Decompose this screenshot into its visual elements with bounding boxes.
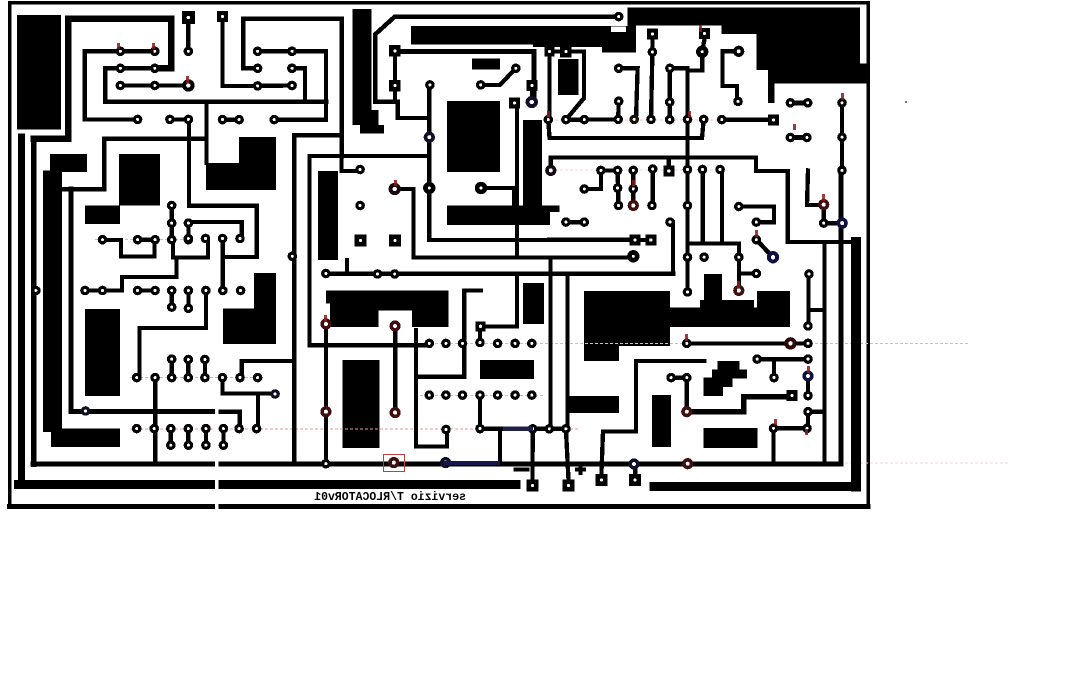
svg-text:servizio T/RLOCATORv01: servizio T/RLOCATORv01 xyxy=(314,491,466,504)
